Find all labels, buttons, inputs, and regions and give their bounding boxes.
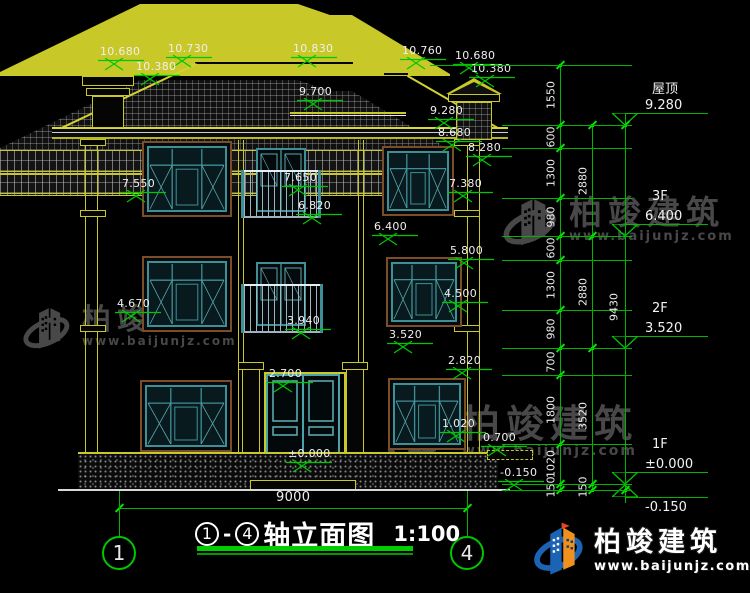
- elevation-marker-eave-low: 8.280: [468, 141, 501, 154]
- elevation-symbol: [442, 300, 488, 313]
- title-axis-from: 1: [195, 522, 219, 546]
- elevation-symbol: [447, 190, 493, 203]
- dim-value: 1020: [545, 450, 558, 478]
- bottom-dim-line: [120, 508, 468, 509]
- dim-chain-outer: [592, 125, 593, 490]
- elevation-marker-3f-window-top-left: 7.550: [122, 177, 155, 190]
- door-pilaster-cap: [238, 362, 264, 370]
- dim-value: 1550: [545, 81, 558, 109]
- elevation-marker-symbol: [400, 57, 446, 70]
- elevation-symbol: [481, 444, 527, 457]
- elevation-marker-2f-floor: 3.520: [389, 328, 422, 341]
- dim-extension-line: [502, 125, 632, 126]
- dim-value: 1300: [545, 271, 558, 299]
- elevation-symbol: [134, 73, 180, 86]
- pilaster-left: [85, 139, 98, 452]
- dim-extension-line: [502, 198, 632, 199]
- elevation-marker-chimney-right-eave: 10.380: [471, 62, 511, 75]
- axis-bubble-right-label: 4: [461, 541, 474, 565]
- window: [382, 146, 454, 216]
- elevation-marker-symbol: [372, 233, 418, 246]
- level-name: 屋顶: [652, 78, 678, 97]
- elevation-marker-ground: -0.150: [500, 466, 537, 479]
- center-eave-shadow: [290, 115, 406, 116]
- elevation-symbol: [372, 233, 418, 246]
- bottom-width-dim: 9000: [276, 490, 310, 505]
- brand-logo-url: www.baijunjz.com: [594, 559, 750, 574]
- elevation-symbol: [387, 341, 433, 354]
- elevation-marker-symbol: [481, 444, 527, 457]
- elevation-marker-symbol: [134, 73, 180, 86]
- elevation-marker-2f-window-top: 5.800: [450, 244, 483, 257]
- elevation-marker-symbol: [447, 190, 493, 203]
- elevation-marker-eave-center: 9.700: [299, 85, 332, 98]
- elevation-marker-1f-window-sill: 1.020: [442, 417, 475, 430]
- pilaster-capital: [80, 210, 106, 217]
- elevation-symbol: [400, 57, 446, 70]
- level-name: 1F: [652, 437, 668, 452]
- elevation-symbol: [291, 55, 337, 68]
- axis-bubble-left-label: 1: [113, 541, 126, 565]
- elevation-marker-symbol: [120, 190, 166, 203]
- elevation-marker-3f-floor: 6.400: [374, 220, 407, 233]
- elevation-marker-1f-side-step: 0.700: [483, 431, 516, 444]
- elevation-marker-1f-door-top: 2.700: [269, 367, 302, 380]
- elevation-marker-3f-door-top: 7.650: [284, 171, 317, 184]
- dim-value: 700: [545, 351, 558, 372]
- elevation-symbol: [286, 460, 332, 473]
- watermark-logo-icon: [22, 300, 74, 352]
- axis-bubble-left: 1: [102, 536, 136, 570]
- elevation-symbol: [115, 310, 161, 323]
- elevation-marker-2f-window-sill-right: 4.500: [444, 287, 477, 300]
- elevation-marker-eave-main: 8.680: [438, 126, 471, 139]
- dim-extension-line: [502, 348, 632, 349]
- dim-value: 2880: [577, 167, 590, 195]
- title-underline-thick: [197, 546, 413, 551]
- dim-value: 150: [577, 477, 590, 498]
- title-scale: 1:100: [393, 522, 460, 546]
- elevation-marker-roof-right: 9.280: [430, 104, 463, 117]
- elevation-marker-ridge-right: 10.760: [402, 44, 442, 57]
- elevation-marker-symbol: [115, 310, 161, 323]
- elevation-marker-ridge-main: 10.830: [293, 42, 333, 55]
- elevation-symbol: [267, 380, 313, 393]
- watermark-url: www.baijunjz.com: [82, 334, 237, 348]
- elevation-symbol: [297, 98, 343, 111]
- chimney-left-cap: [82, 76, 134, 86]
- elevation-marker-1f-window-top: 2.820: [448, 354, 481, 367]
- brand-logo-text: 柏竣建筑: [594, 520, 750, 559]
- elevation-symbol: [285, 327, 331, 340]
- elevation-marker-chimney-left-top: 10.680: [100, 45, 140, 58]
- elevation-marker-2f-window-sill-left: 4.670: [117, 297, 150, 310]
- elevation-marker-3f-balcony-rail: 6.820: [298, 199, 331, 212]
- dim-extension-line: [502, 375, 632, 376]
- elevation-marker-symbol: [291, 55, 337, 68]
- elevation-symbol: [466, 154, 512, 167]
- elevation-symbol: [446, 367, 492, 380]
- chimney-left-body: [92, 96, 124, 128]
- elevation-marker-symbol: [448, 257, 494, 270]
- balcony-post: [241, 284, 244, 333]
- elevation-marker-1f-floor: ±0.000: [288, 447, 331, 460]
- elevation-marker-chimney-right-top: 10.680: [455, 49, 495, 62]
- dim-value: 980: [545, 319, 558, 340]
- title-dash: -: [223, 522, 231, 546]
- elevation-symbol: [469, 75, 515, 88]
- elevation-symbol: [282, 184, 328, 197]
- level-name: 3F: [652, 189, 668, 204]
- elevation-marker-symbol: [286, 460, 332, 473]
- chimney-right-band: [448, 94, 500, 102]
- elevation-symbol: [296, 212, 342, 225]
- chimney-left-cap2: [86, 88, 130, 96]
- pilaster-capital: [80, 325, 106, 332]
- elevation-marker-symbol: [267, 380, 313, 393]
- level-elevation: ±0.000: [645, 457, 693, 472]
- level-elevation: -0.150: [645, 500, 687, 515]
- dim-extension-line: [502, 148, 632, 149]
- title-axis-to: 4: [235, 522, 259, 546]
- elevation-marker-symbol: [442, 300, 488, 313]
- elevation-symbol: [448, 257, 494, 270]
- elevation-symbol: [440, 430, 486, 443]
- elevation-marker-3f-window-top-right: 7.380: [449, 177, 482, 190]
- pilaster-capital: [454, 210, 480, 217]
- window: [142, 141, 232, 217]
- dim-extension-line: [502, 484, 632, 485]
- balcony-post: [320, 284, 323, 333]
- elevation-marker-chimney-left-eave: 10.380: [136, 60, 176, 73]
- dim-extension-line: [502, 444, 632, 445]
- elevation-marker-symbol: [446, 367, 492, 380]
- elevation-marker-2f-balcony-rail: 3.940: [287, 314, 320, 327]
- elevation-marker-ridge-left: 10.730: [168, 42, 208, 55]
- elevation-marker-symbol: [296, 212, 342, 225]
- dim-value: 600: [545, 126, 558, 147]
- brand-logo-icon: [534, 516, 586, 578]
- dim-value: 1300: [545, 159, 558, 187]
- dim-extension-line: [502, 260, 632, 261]
- level-elevation: 6.400: [645, 209, 682, 224]
- ground-line: [58, 489, 510, 491]
- level-name: 2F: [652, 301, 668, 316]
- elevation-marker-symbol: [440, 430, 486, 443]
- elevation-marker-symbol: [285, 327, 331, 340]
- dim-value: 1800: [545, 396, 558, 424]
- pilaster-capital: [80, 139, 106, 146]
- brand-logo[interactable]: 柏竣建筑 www.baijunjz.com: [534, 516, 750, 578]
- dim-extension-line: [502, 236, 632, 237]
- elevation-symbol: [120, 190, 166, 203]
- dim-extension-line: [502, 490, 632, 491]
- elevation-marker-symbol: [387, 341, 433, 354]
- title-underline-thin: [197, 553, 413, 555]
- elevation-marker-symbol: [297, 98, 343, 111]
- window: [140, 380, 232, 452]
- door-pilaster-left: [242, 366, 260, 454]
- balcony-post: [241, 170, 244, 218]
- dim-extension-line: [430, 65, 632, 66]
- door-pilaster-cap: [342, 362, 368, 370]
- door-pilaster-right: [346, 366, 364, 454]
- dim-value: 150: [545, 477, 558, 498]
- dim-chain-inner: [560, 65, 561, 490]
- dim-value: 9430: [608, 293, 621, 321]
- dim-value: 600: [545, 238, 558, 259]
- dim-value: 3520: [577, 402, 590, 430]
- dim-value: 980: [545, 207, 558, 228]
- roof-ridge-cap-right: [383, 72, 409, 76]
- center-eave-line: [290, 112, 406, 114]
- elevation-marker-symbol: [282, 184, 328, 197]
- dim-value: 2880: [577, 278, 590, 306]
- elevation-marker-symbol: [466, 154, 512, 167]
- cad-elevation-drawing: 9000 1 4 1 - 4 轴立面图 1:100 柏竣建筑 www.b: [0, 0, 750, 593]
- level-elevation: 3.520: [645, 321, 682, 336]
- elevation-marker-symbol: [469, 75, 515, 88]
- level-elevation: 9.280: [645, 98, 682, 113]
- level-line: [625, 497, 708, 498]
